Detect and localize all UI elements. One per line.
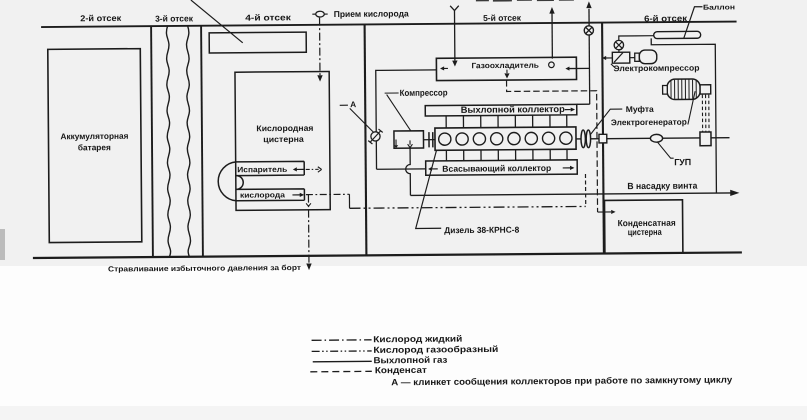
svg-text:Электрогенератор: Электрогенератор: [611, 118, 687, 128]
svg-text:Конденсат: Конденсат: [375, 365, 428, 375]
svg-text:Кислород газообразный: Кислород газообразный: [373, 344, 498, 355]
svg-text:ГУП: ГУП: [674, 157, 691, 167]
svg-text:Электрокомпрессор: Электрокомпрессор: [613, 64, 699, 74]
svg-text:Выхлопной газ: Выхлопной газ: [373, 355, 448, 366]
svg-text:А: А: [350, 100, 356, 109]
svg-text:Муфта: Муфта: [626, 105, 655, 114]
svg-text:5-й отсек: 5-й отсек: [483, 13, 522, 23]
svg-text:Всасывающий коллектор: Всасывающий коллектор: [442, 163, 551, 174]
svg-text:Выхлопной коллектор: Выхлопной коллектор: [461, 104, 566, 115]
svg-text:6-й отсек: 6-й отсек: [644, 13, 688, 23]
svg-text:В насадку винта: В насадку винта: [627, 181, 698, 192]
svg-text:батарея: батарея: [78, 142, 111, 152]
svg-text:Прием кислорода: Прием кислорода: [334, 8, 409, 19]
svg-text:Кислородная: Кислородная: [256, 123, 313, 133]
svg-text:Испаритель: Испаритель: [237, 165, 287, 174]
svg-text:3-й отсек: 3-й отсек: [155, 13, 194, 23]
svg-text:Стравливание избыточного давле: Стравливание избыточного давления за бор…: [108, 263, 301, 274]
svg-text:Аккумуляторная: Аккумуляторная: [60, 131, 128, 142]
svg-text:цистерна: цистерна: [263, 134, 304, 144]
svg-text:цистерна: цистерна: [628, 227, 662, 237]
svg-text:Дизель 38-КРНС-8: Дизель 38-КРНС-8: [444, 225, 519, 236]
svg-text:кислорода: кислорода: [240, 190, 286, 199]
svg-text:2-й отсек: 2-й отсек: [80, 13, 122, 23]
svg-text:Кислород жидкий: Кислород жидкий: [373, 334, 462, 345]
svg-text:Баллон: Баллон: [703, 4, 735, 11]
svg-text:Газоохладитель: Газоохладитель: [471, 61, 539, 71]
svg-text:Компрессор: Компрессор: [400, 88, 449, 98]
svg-text:4-й отсек: 4-й отсек: [245, 12, 292, 22]
